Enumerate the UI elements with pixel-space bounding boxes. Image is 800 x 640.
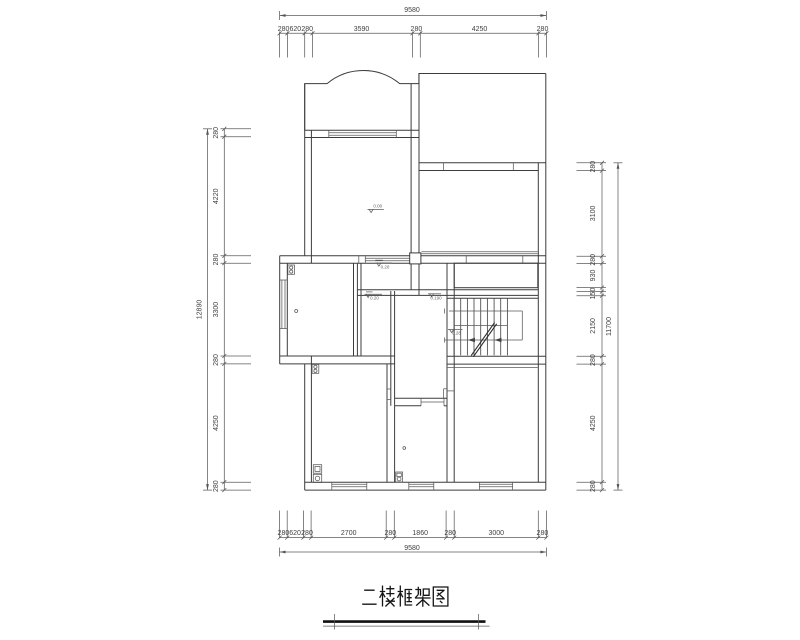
svg-text:280: 280 — [590, 161, 597, 173]
svg-text:3000: 3000 — [489, 530, 505, 537]
svg-text:280: 280 — [590, 480, 597, 492]
svg-text:620: 620 — [289, 530, 301, 537]
svg-text:280: 280 — [213, 254, 220, 266]
svg-text:12890: 12890 — [197, 300, 204, 320]
svg-text:280: 280 — [444, 530, 456, 537]
svg-text:280: 280 — [384, 530, 396, 537]
svg-text:150: 150 — [590, 288, 597, 300]
svg-text:280: 280 — [411, 26, 423, 33]
svg-text:9580: 9580 — [404, 7, 420, 14]
svg-text:280: 280 — [301, 530, 313, 537]
svg-text:3300: 3300 — [213, 302, 220, 318]
svg-text:4250: 4250 — [213, 415, 220, 431]
svg-text:280: 280 — [278, 26, 290, 33]
svg-text:0.28: 0.28 — [452, 330, 461, 335]
svg-text:280: 280 — [301, 26, 313, 33]
svg-text:4220: 4220 — [213, 188, 220, 204]
svg-text:4250: 4250 — [472, 26, 488, 33]
svg-text:3100: 3100 — [590, 206, 597, 222]
svg-text:2150: 2150 — [590, 318, 597, 334]
svg-text:4250: 4250 — [590, 415, 597, 431]
svg-text:280: 280 — [590, 354, 597, 366]
svg-text:3590: 3590 — [354, 26, 370, 33]
svg-text:9580: 9580 — [404, 545, 420, 552]
svg-text:2700: 2700 — [341, 530, 357, 537]
svg-text:1860: 1860 — [412, 530, 428, 537]
svg-text:11700: 11700 — [606, 317, 613, 336]
svg-text:280: 280 — [590, 254, 597, 266]
svg-text:280: 280 — [537, 26, 549, 33]
svg-text:280: 280 — [537, 530, 549, 537]
svg-text:0.00: 0.00 — [373, 204, 382, 209]
svg-text:0.20: 0.20 — [381, 264, 390, 269]
svg-text:280: 280 — [213, 127, 220, 139]
svg-text:280: 280 — [278, 530, 290, 537]
svg-text:280: 280 — [213, 480, 220, 492]
svg-text:280: 280 — [213, 354, 220, 366]
svg-text:0.20: 0.20 — [370, 296, 379, 301]
svg-text:0.190: 0.190 — [430, 295, 442, 300]
svg-text:620: 620 — [289, 26, 301, 33]
svg-text:930: 930 — [590, 270, 597, 282]
